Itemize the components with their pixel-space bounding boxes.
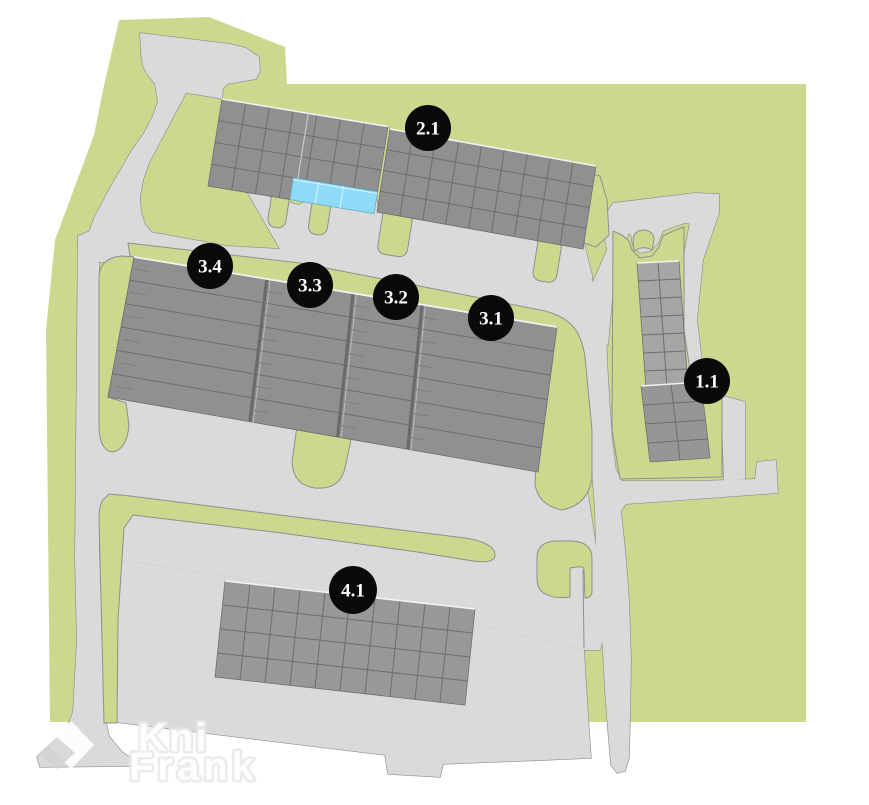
svg-text:3.2: 3.2 bbox=[384, 288, 408, 309]
svg-text:3.1: 3.1 bbox=[479, 309, 503, 330]
svg-text:1.1: 1.1 bbox=[695, 372, 719, 393]
svg-text:2.1: 2.1 bbox=[416, 119, 440, 140]
svg-text:4.1: 4.1 bbox=[341, 581, 365, 602]
svg-text:Frank: Frank bbox=[129, 745, 258, 789]
svg-text:3.3: 3.3 bbox=[298, 276, 322, 297]
svg-text:3.4: 3.4 bbox=[198, 257, 222, 278]
